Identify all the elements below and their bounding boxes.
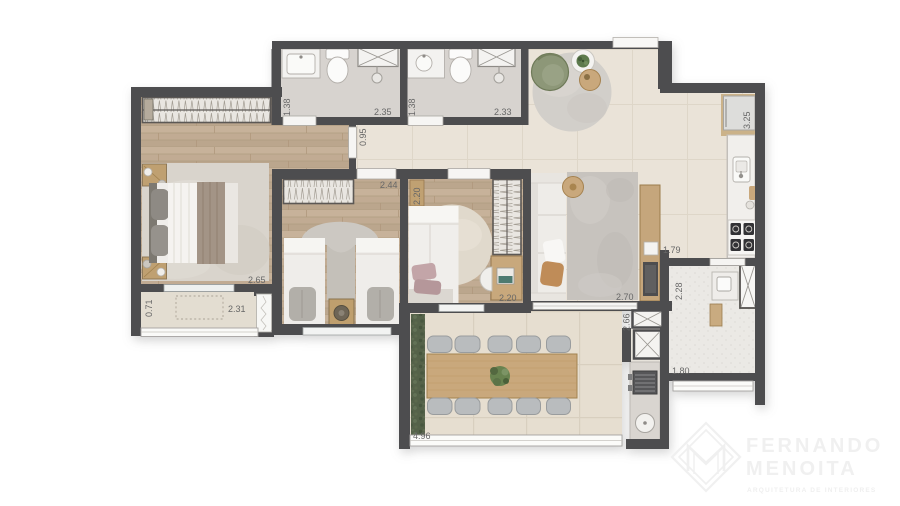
svg-text:FERNANDO: FERNANDO	[746, 435, 883, 457]
svg-text:2.70: 2.70	[616, 292, 634, 302]
svg-text:2.33: 2.33	[494, 107, 512, 117]
svg-text:1.38: 1.38	[407, 98, 417, 116]
svg-text:MENOITA: MENOITA	[746, 458, 858, 480]
svg-text:2.20: 2.20	[412, 187, 422, 205]
svg-text:1.38: 1.38	[282, 98, 292, 116]
svg-text:0.71: 0.71	[144, 299, 154, 317]
svg-text:3.25: 3.25	[742, 111, 752, 129]
svg-text:2.35: 2.35	[374, 107, 392, 117]
svg-text:ARQUITETURA DE INTERIORES: ARQUITETURA DE INTERIORES	[747, 487, 876, 494]
svg-text:1.79: 1.79	[663, 245, 681, 255]
svg-text:2.65: 2.65	[248, 275, 266, 285]
svg-text:2.28: 2.28	[674, 282, 684, 300]
svg-text:1.80: 1.80	[672, 366, 690, 376]
svg-text:4.96: 4.96	[413, 431, 431, 441]
svg-text:2.31: 2.31	[228, 304, 246, 314]
svg-text:0.95: 0.95	[358, 128, 368, 146]
svg-text:2.20: 2.20	[499, 293, 517, 303]
svg-text:2.66: 2.66	[622, 313, 632, 331]
svg-text:2.44: 2.44	[380, 180, 398, 190]
